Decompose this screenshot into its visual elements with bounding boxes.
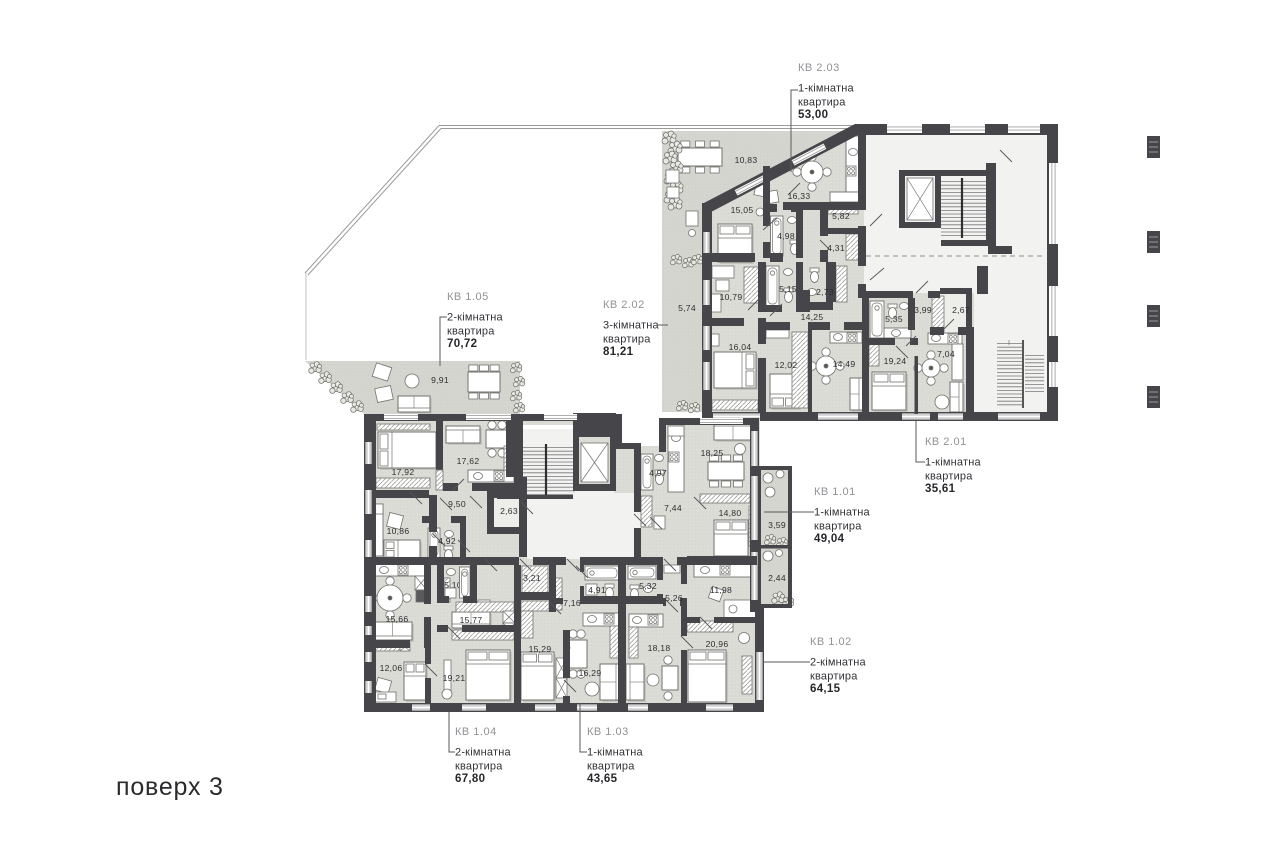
svg-text:14,80: 14,80	[719, 508, 742, 518]
svg-text:20,96: 20,96	[706, 639, 729, 649]
svg-text:2,63: 2,63	[500, 506, 518, 516]
svg-text:14,25: 14,25	[801, 312, 824, 322]
svg-text:67,80: 67,80	[455, 773, 485, 785]
svg-text:4,97: 4,97	[649, 468, 667, 478]
svg-text:15,77: 15,77	[460, 615, 483, 625]
svg-text:17,92: 17,92	[392, 467, 415, 477]
svg-text:10,86: 10,86	[387, 526, 410, 536]
svg-text:18,25: 18,25	[701, 448, 724, 458]
svg-text:49,04: 49,04	[814, 533, 845, 545]
svg-text:квартира: квартира	[814, 521, 862, 533]
svg-text:16,29: 16,29	[579, 668, 602, 678]
svg-text:3,99: 3,99	[914, 305, 932, 315]
svg-text:18,18: 18,18	[648, 643, 671, 653]
svg-text:1-кімнатна: 1-кімнатна	[587, 747, 643, 759]
svg-text:квартира: квартира	[810, 671, 858, 683]
svg-text:1-кімнатна: 1-кімнатна	[798, 83, 854, 95]
svg-text:5,35: 5,35	[885, 314, 903, 324]
svg-text:3-кімнатна: 3-кімнатна	[603, 320, 659, 332]
svg-text:81,21: 81,21	[603, 346, 634, 358]
svg-text:15,29: 15,29	[529, 644, 552, 654]
svg-text:КВ 1.04: КВ 1.04	[455, 726, 497, 738]
svg-text:16,04: 16,04	[729, 342, 752, 352]
svg-text:19,21: 19,21	[443, 673, 466, 683]
svg-text:5,32: 5,32	[639, 581, 657, 591]
svg-text:КВ 2.03: КВ 2.03	[798, 62, 840, 74]
svg-text:КВ 1.02: КВ 1.02	[810, 636, 852, 648]
svg-text:поверх 3: поверх 3	[116, 773, 224, 801]
svg-text:70,72: 70,72	[447, 338, 477, 350]
svg-text:2-кімнатна: 2-кімнатна	[447, 312, 503, 324]
svg-text:7,16: 7,16	[563, 598, 581, 608]
svg-text:7,44: 7,44	[664, 503, 682, 513]
svg-text:3,21: 3,21	[523, 573, 541, 583]
svg-text:43,65: 43,65	[587, 773, 618, 785]
svg-text:9,91: 9,91	[431, 375, 449, 385]
svg-text:квартира: квартира	[603, 334, 651, 346]
svg-text:4,31: 4,31	[827, 243, 845, 253]
svg-text:10,83: 10,83	[735, 155, 758, 165]
svg-text:2,73: 2,73	[816, 287, 834, 297]
svg-text:4,91: 4,91	[588, 585, 606, 595]
svg-text:12,06: 12,06	[380, 663, 403, 673]
svg-text:5,15: 5,15	[779, 284, 797, 294]
svg-text:квартира: квартира	[455, 761, 503, 773]
svg-text:квартира: квартира	[798, 97, 846, 109]
svg-text:1-кімнатна: 1-кімнатна	[814, 507, 870, 519]
svg-text:9,50: 9,50	[448, 499, 466, 509]
svg-text:12,02: 12,02	[775, 360, 798, 370]
svg-text:2,67: 2,67	[952, 305, 970, 315]
svg-text:64,15: 64,15	[810, 683, 841, 695]
svg-text:11,98: 11,98	[710, 585, 732, 595]
svg-text:КВ 1.05: КВ 1.05	[447, 291, 489, 303]
svg-text:10,79: 10,79	[720, 292, 743, 302]
svg-text:квартира: квартира	[587, 761, 635, 773]
svg-text:2,44: 2,44	[768, 573, 786, 583]
svg-text:4,92: 4,92	[438, 536, 456, 546]
svg-text:4,98: 4,98	[777, 231, 795, 241]
svg-text:16,33: 16,33	[788, 191, 811, 201]
svg-text:2-кімнатна: 2-кімнатна	[810, 657, 866, 669]
svg-text:5,82: 5,82	[832, 211, 850, 221]
svg-text:15,05: 15,05	[731, 205, 754, 215]
svg-text:КВ 2.01: КВ 2.01	[925, 436, 967, 448]
svg-text:3,59: 3,59	[768, 520, 786, 530]
svg-text:35,61: 35,61	[925, 483, 956, 495]
svg-text:53,00: 53,00	[798, 109, 828, 121]
svg-text:КВ 1.01: КВ 1.01	[814, 486, 856, 498]
svg-text:5,26: 5,26	[665, 593, 683, 603]
svg-text:5,74: 5,74	[678, 303, 696, 313]
svg-text:17,62: 17,62	[457, 456, 480, 466]
svg-text:КВ 1.03: КВ 1.03	[587, 726, 629, 738]
svg-text:15,66: 15,66	[386, 614, 409, 624]
svg-text:квартира: квартира	[447, 326, 495, 338]
svg-text:1-кімнатна: 1-кімнатна	[925, 457, 981, 469]
svg-text:КВ 2.02: КВ 2.02	[603, 299, 645, 311]
svg-text:14,49: 14,49	[833, 359, 856, 369]
svg-text:квартира: квартира	[925, 471, 973, 483]
svg-text:2-кімнатна: 2-кімнатна	[455, 747, 511, 759]
svg-text:7,04: 7,04	[937, 349, 955, 359]
svg-text:19,24: 19,24	[884, 356, 907, 366]
